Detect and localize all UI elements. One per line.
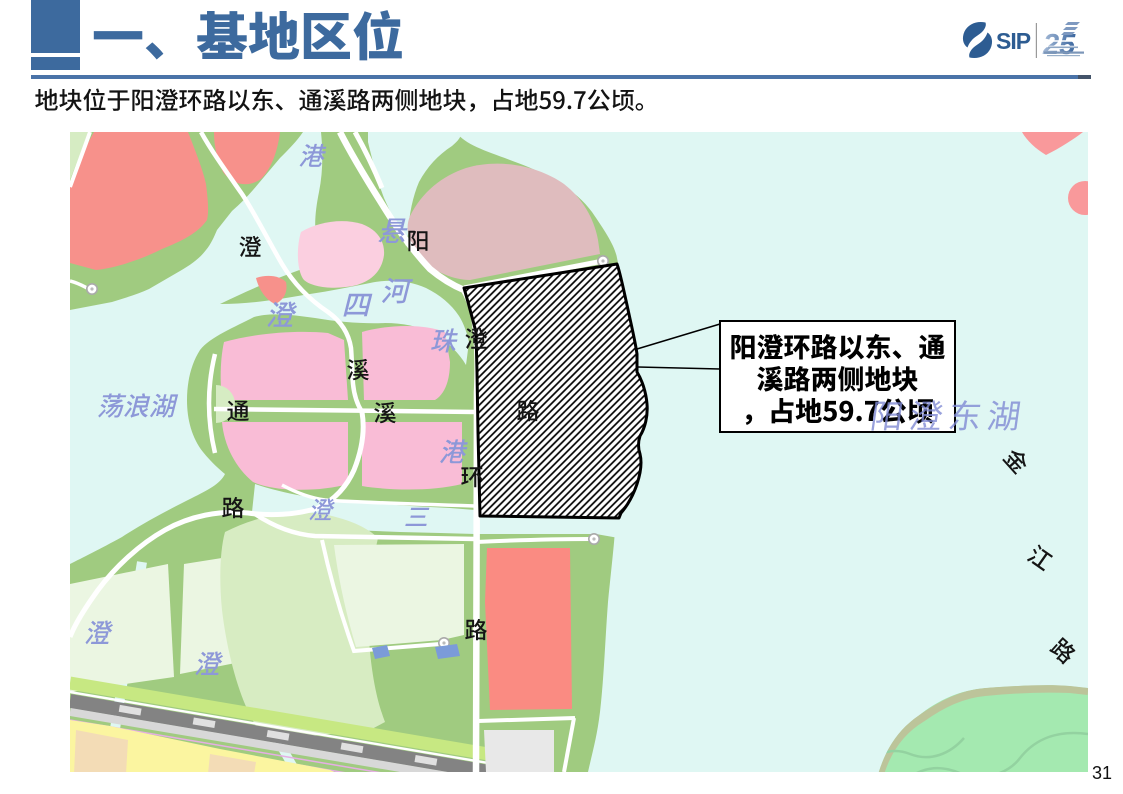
svg-text:SIP: SIP (996, 28, 1031, 54)
